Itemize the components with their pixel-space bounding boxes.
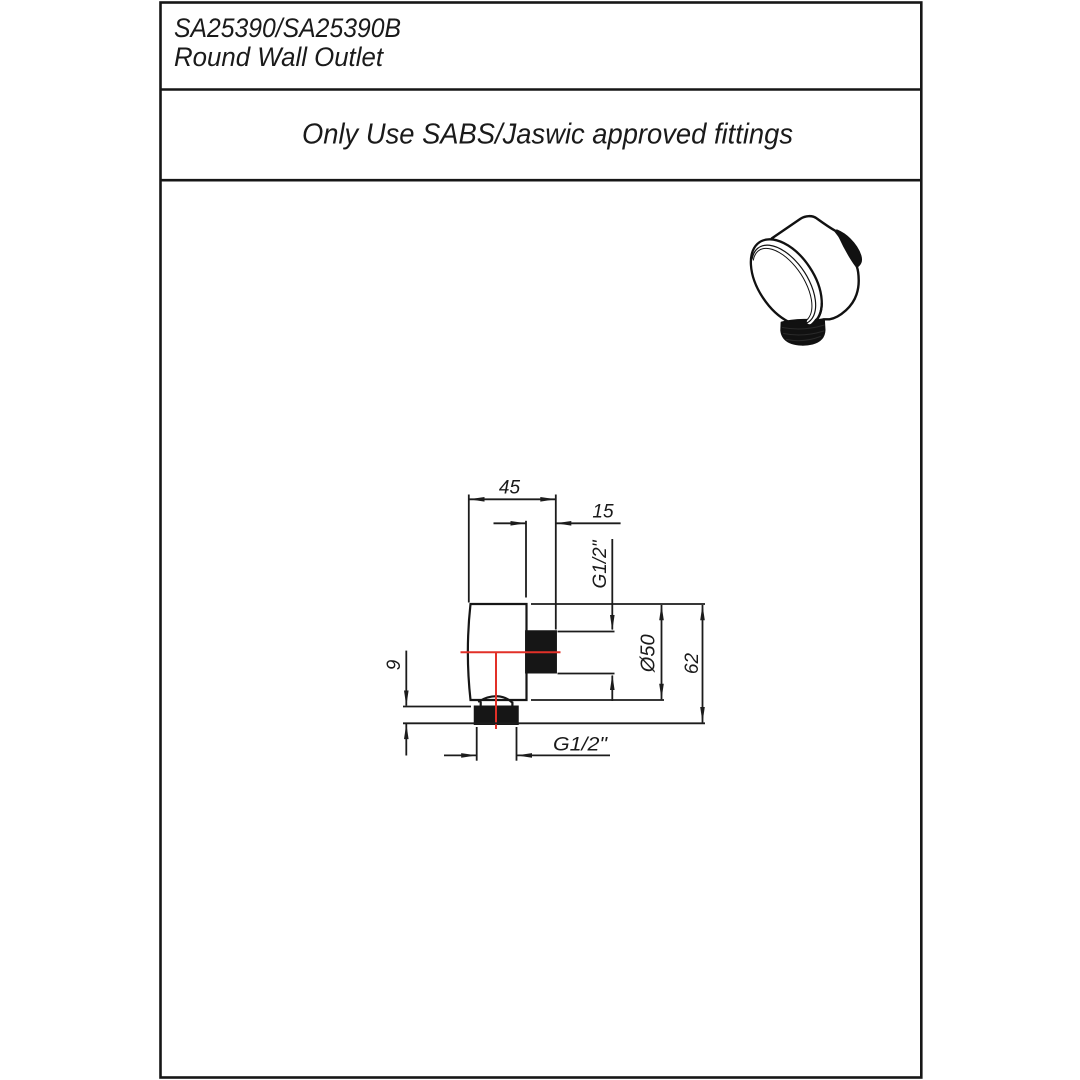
svg-text:45: 45 [499, 478, 521, 499]
svg-text:15: 15 [592, 502, 614, 523]
svg-text:Only Use SABS/Jaswic approved: Only Use SABS/Jaswic approved fittings [302, 119, 793, 151]
svg-text:62: 62 [682, 653, 703, 675]
svg-text:9: 9 [384, 659, 405, 670]
svg-text:G1/2": G1/2" [553, 735, 608, 756]
svg-text:Ø50: Ø50 [638, 634, 660, 673]
svg-text:SA25390/SA25390B: SA25390/SA25390B [174, 13, 401, 43]
svg-text:G1/2": G1/2" [590, 539, 611, 588]
svg-text:Round Wall Outlet: Round Wall Outlet [174, 42, 384, 72]
